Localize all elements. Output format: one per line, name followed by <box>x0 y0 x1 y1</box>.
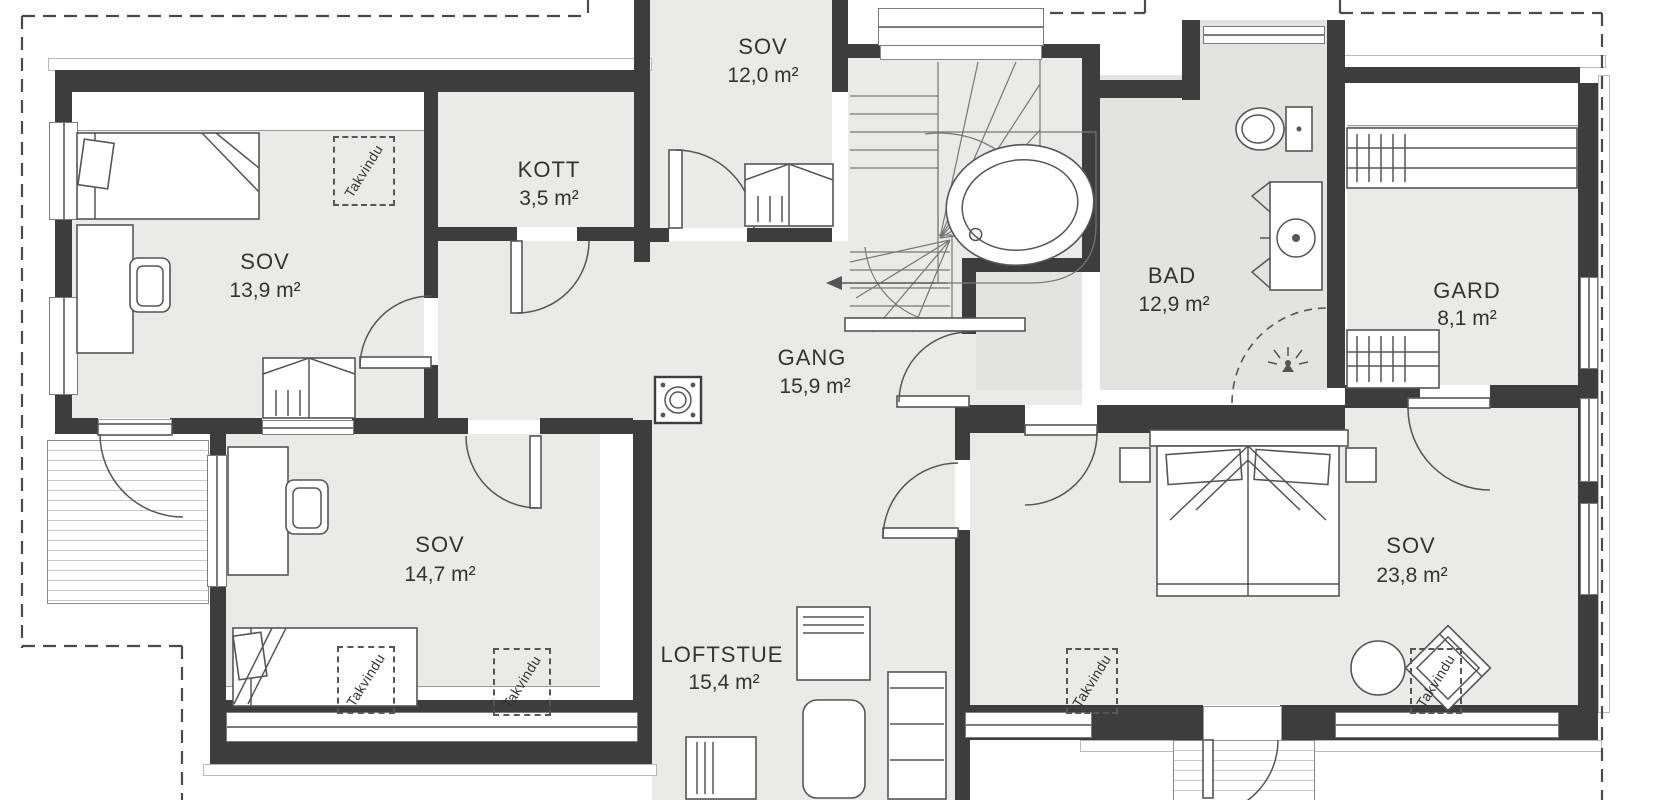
window-sov-master-1 <box>1580 398 1598 482</box>
wall-hall-north-a <box>845 44 880 58</box>
room-label-bad: BAD <box>1148 263 1196 289</box>
window-bottom-right-2 <box>1335 712 1559 738</box>
wall-sovmaster-north-a <box>962 405 1025 433</box>
room-area-sov-left: 13,9 m² <box>229 279 300 303</box>
wall-bad-north <box>1100 80 1184 98</box>
room-label-sov-bottom-left: SOV <box>415 532 464 558</box>
wall-gard-south-a <box>1345 385 1420 408</box>
room-label-gang: GANG <box>778 345 847 371</box>
threshold-balcony-door <box>1203 706 1282 741</box>
sill-stair-hall <box>880 44 1042 60</box>
room-area-sov-top: 12,0 m² <box>727 64 798 88</box>
knee-strip-gard <box>1347 83 1578 126</box>
window-left-2 <box>49 297 78 395</box>
window-sov-bottom-top-wall <box>262 420 354 435</box>
balcony-deck <box>1173 740 1315 800</box>
window-wc-dormer <box>1203 26 1325 44</box>
roof-window-sov-master-1: Takvindu <box>1066 648 1118 714</box>
room-area-kott: 3,5 m² <box>519 187 579 211</box>
room-label-sov-top: SOV <box>738 34 787 60</box>
eave-right <box>1598 75 1610 713</box>
floor-gard <box>1347 83 1578 385</box>
eave-bottom-right <box>1080 740 1602 752</box>
wall-sovtop-south-b <box>747 228 832 242</box>
wall-row-south-c <box>352 418 468 434</box>
wall-loft-sovmaster-a <box>955 405 970 460</box>
room-area-gard: 8,1 m² <box>1437 307 1497 331</box>
roof-window-sov-bottom-1: Takvindu <box>337 646 395 714</box>
wall-sovtop-left <box>634 0 650 262</box>
wall-bad-west-upper <box>1082 44 1100 272</box>
floor-sov-master-step <box>1345 408 1578 438</box>
room-area-gang: 15,9 m² <box>779 375 850 399</box>
wall-gard-south-b <box>1490 385 1580 408</box>
wall-knee-bottom <box>210 700 652 712</box>
room-area-sov-master: 23,8 m² <box>1376 564 1447 588</box>
wall-row-south-d <box>540 418 633 434</box>
wall-right <box>1578 83 1598 707</box>
wall-hall-north-b <box>1040 44 1082 58</box>
room-label-sov-master: SOV <box>1386 533 1435 559</box>
floor-bad-west <box>976 272 1082 390</box>
floor-plan: Takvindu Takvindu Takvindu Takvindu Takv… <box>0 0 1670 800</box>
room-label-sov-left: SOV <box>240 249 289 275</box>
roof-window-label: Takvindu <box>1414 652 1459 711</box>
roof-window-sov-master-2: Takvindu <box>1410 648 1462 714</box>
terrace-deck <box>47 440 209 604</box>
roof-window-sov-bottom-2: Takvindu <box>493 648 551 716</box>
room-area-bad: 12,9 m² <box>1138 293 1209 317</box>
wall-sovtop-south-a <box>650 228 669 242</box>
wall-kott-south-a <box>438 227 517 241</box>
wall-sovleft-gang-a <box>424 241 438 298</box>
roof-window-label: Takvindu <box>1070 652 1115 711</box>
room-label-kott: KOTT <box>518 157 581 183</box>
wall-loftstue-left <box>633 420 652 742</box>
wall-top-right <box>1343 67 1580 83</box>
wall-sovleft-gang-b <box>424 365 438 420</box>
roof-window-label: Takvindu <box>342 142 387 201</box>
wall-loft-sovmaster-b <box>955 530 970 800</box>
window-sov-master-2 <box>1580 503 1598 595</box>
wall-bad-west-lower <box>962 258 976 334</box>
floor-sov-master <box>970 433 1578 705</box>
wall-sovleft-kott <box>424 92 438 241</box>
threshold-terrace-door <box>98 419 172 435</box>
window-left-1 <box>49 122 78 220</box>
room-label-loftstue: LOFTSTUE <box>661 642 784 668</box>
room-area-sov-bottom-left: 14,7 m² <box>404 563 475 587</box>
wall-row-south-a <box>55 418 98 434</box>
wall-wc-dormer-left <box>1182 20 1200 100</box>
wall-sovmaster-north-b <box>1097 405 1345 433</box>
window-band-bottom-left <box>226 712 638 742</box>
room-area-loftstue: 15,4 m² <box>688 671 759 695</box>
floor-loftstue <box>652 420 955 800</box>
door-leaf-gard <box>1408 398 1490 408</box>
window-bottom-right-1 <box>965 712 1092 738</box>
wall-bad-jog <box>962 258 1100 272</box>
floor-bad <box>1100 75 1327 390</box>
roof-window-label: Takvindu <box>500 653 545 712</box>
roof-window-label: Takvindu <box>344 651 389 710</box>
window-terrace-side <box>207 455 227 587</box>
wall-top-left <box>55 70 650 92</box>
room-label-gard: GARD <box>1433 278 1501 304</box>
knee-strip-sov-left <box>72 92 424 131</box>
roof-window-sov-left: Takvindu <box>333 136 395 206</box>
eave-bottom-left <box>203 764 657 776</box>
window-stair-hall <box>878 8 1044 46</box>
wall-bottom-left <box>210 740 652 764</box>
window-gard <box>1580 277 1598 369</box>
